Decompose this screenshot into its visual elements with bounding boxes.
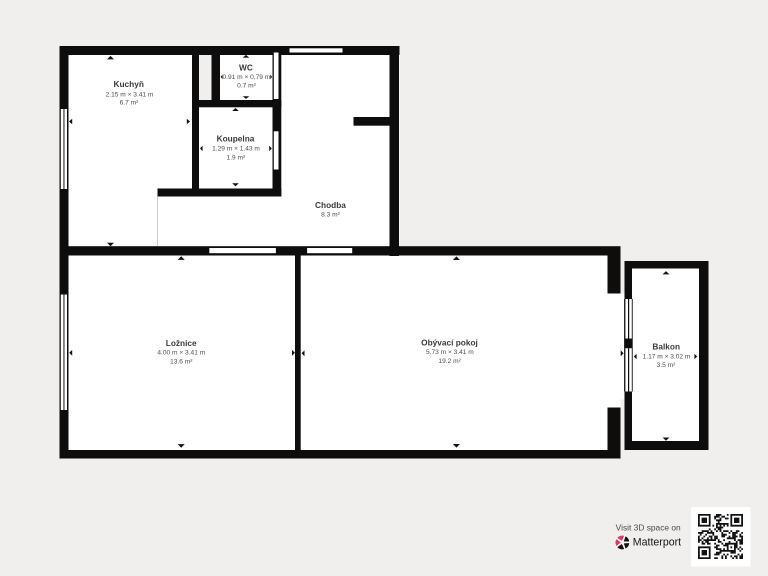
svg-text:3.5 m²: 3.5 m² xyxy=(657,362,676,369)
svg-text:1.29 m × 1.43 m: 1.29 m × 1.43 m xyxy=(212,146,260,153)
svg-text:Koupelna: Koupelna xyxy=(217,134,255,144)
svg-text:0.91 m × 0.79 m: 0.91 m × 0.79 m xyxy=(222,74,270,81)
svg-text:Visit 3D space on: Visit 3D space on xyxy=(616,522,681,532)
svg-text:WC: WC xyxy=(239,62,253,72)
svg-text:19.2 m²: 19.2 m² xyxy=(438,358,461,365)
svg-text:8.3 m²: 8.3 m² xyxy=(321,211,340,218)
svg-text:Ložnice: Ložnice xyxy=(166,338,197,348)
svg-text:Chodba: Chodba xyxy=(315,200,346,210)
svg-text:13.6 m²: 13.6 m² xyxy=(170,359,193,366)
svg-text:Kuchyň: Kuchyň xyxy=(113,79,143,89)
svg-text:4.00 m × 3.41 m: 4.00 m × 3.41 m xyxy=(157,350,205,357)
svg-text:5.73 m × 3.41 m: 5.73 m × 3.41 m xyxy=(426,349,474,356)
svg-text:0.7 m²: 0.7 m² xyxy=(237,83,256,90)
svg-text:Balkon: Balkon xyxy=(652,342,680,352)
svg-text:Obývací pokoj: Obývací pokoj xyxy=(421,337,478,347)
svg-text:1.17 m × 3.02 m: 1.17 m × 3.02 m xyxy=(643,354,691,361)
svg-text:2.15 m × 3.41 m: 2.15 m × 3.41 m xyxy=(106,91,154,98)
svg-text:1.9 m²: 1.9 m² xyxy=(227,154,246,161)
svg-text:6.7 m²: 6.7 m² xyxy=(120,100,139,107)
svg-text:Matterport: Matterport xyxy=(633,536,681,548)
